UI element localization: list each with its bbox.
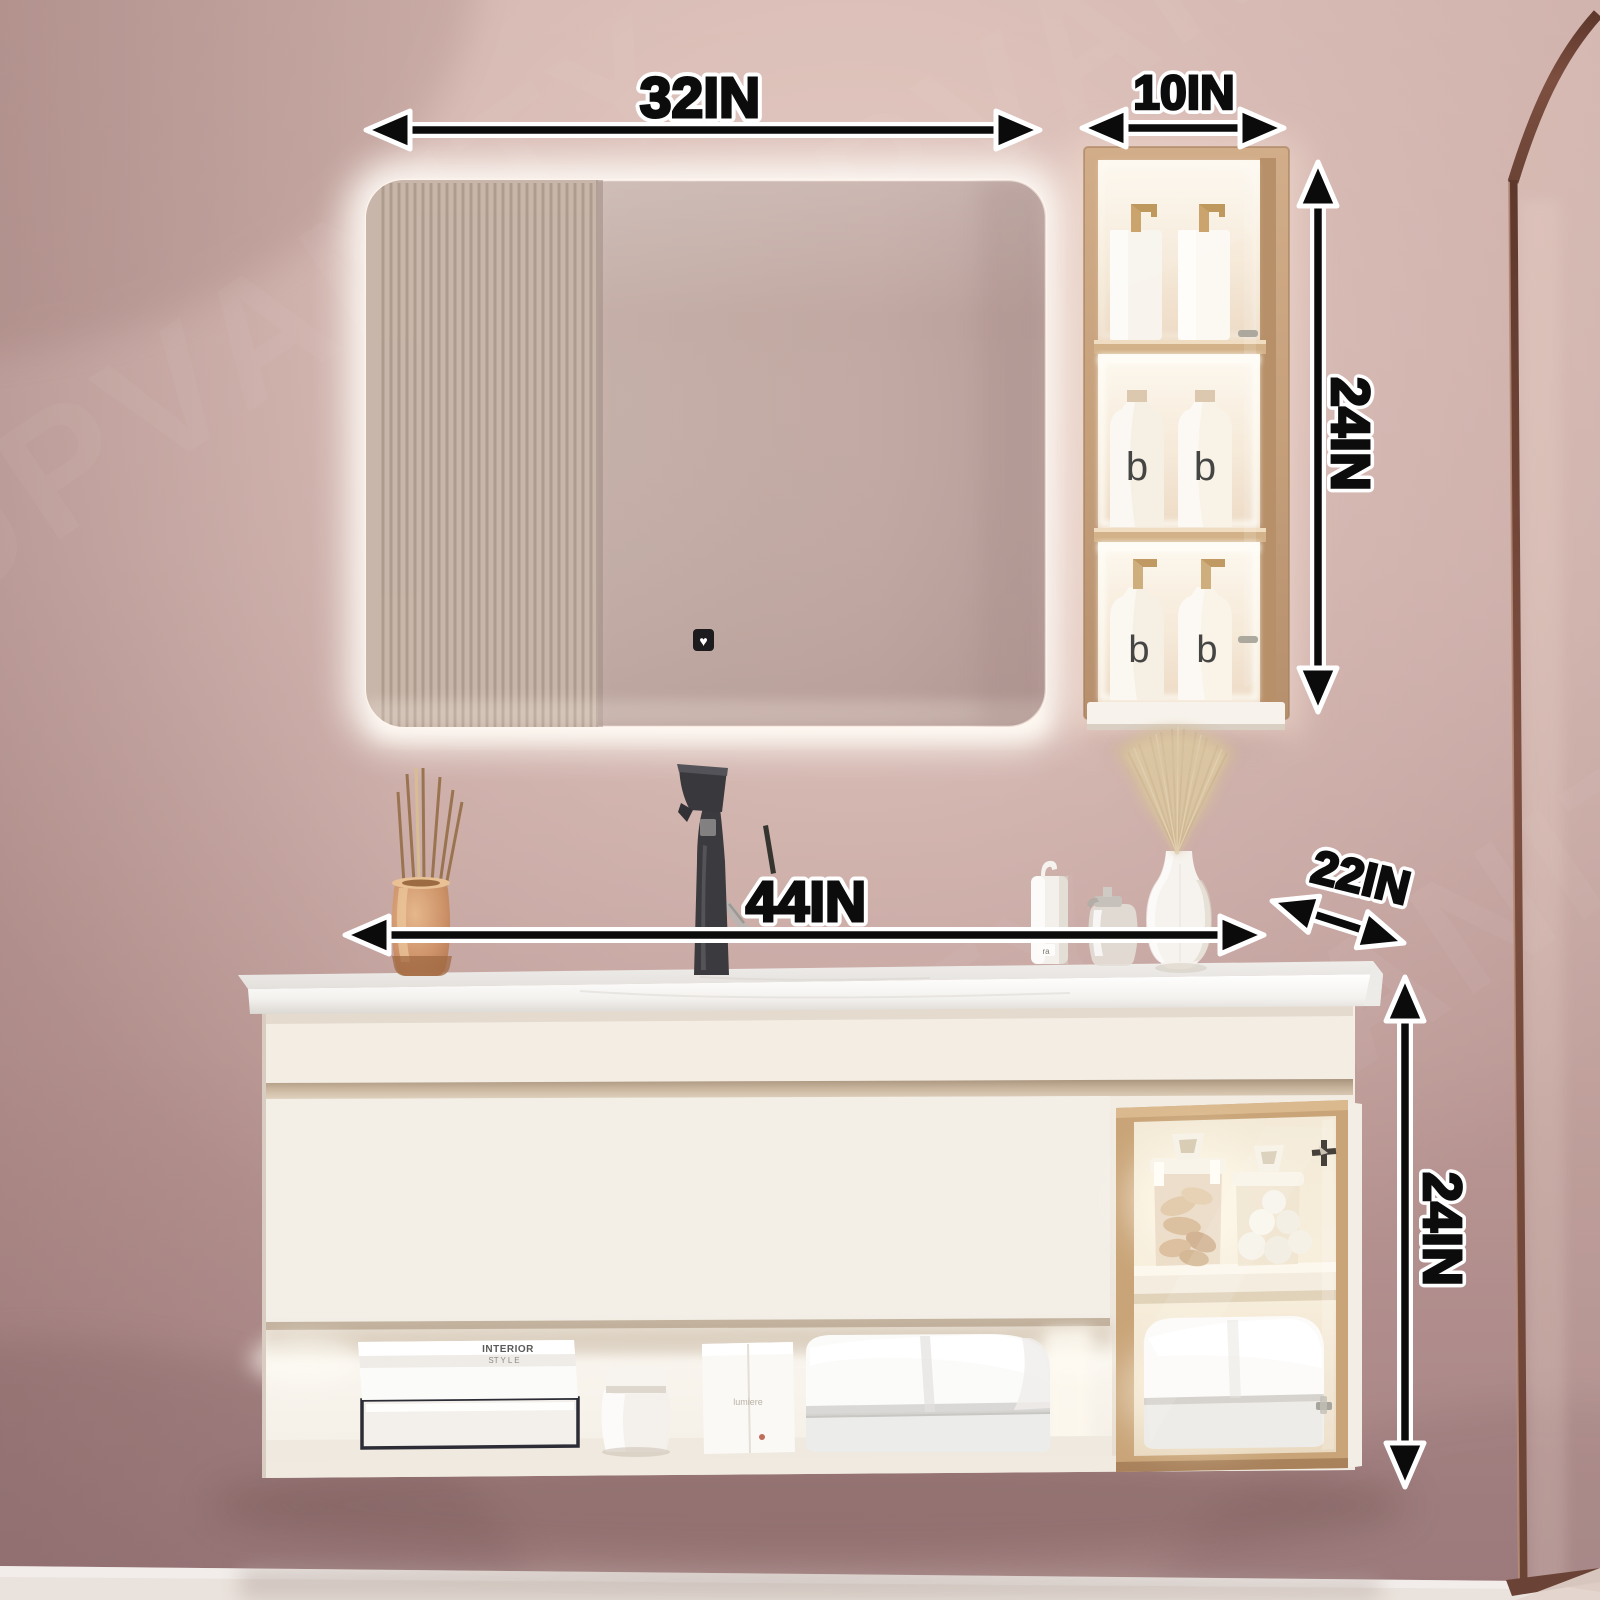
- svg-text:b: b: [1128, 629, 1149, 671]
- svg-text:ra: ra: [1042, 947, 1050, 956]
- svg-text:10IN: 10IN: [1133, 67, 1234, 120]
- svg-text:lumiere: lumiere: [733, 1397, 763, 1407]
- svg-text:32IN: 32IN: [640, 66, 760, 130]
- svg-text:24IN: 24IN: [1320, 377, 1380, 491]
- svg-text:♥: ♥: [699, 633, 707, 649]
- svg-text:ST Y L E: ST Y L E: [488, 1356, 519, 1365]
- svg-text:24IN: 24IN: [1412, 1172, 1472, 1286]
- svg-text:b: b: [1196, 629, 1217, 671]
- svg-text:INTERIOR: INTERIOR: [482, 1344, 534, 1355]
- svg-text:b: b: [1126, 445, 1148, 489]
- svg-text:b: b: [1194, 445, 1216, 489]
- svg-text:44IN: 44IN: [746, 870, 866, 934]
